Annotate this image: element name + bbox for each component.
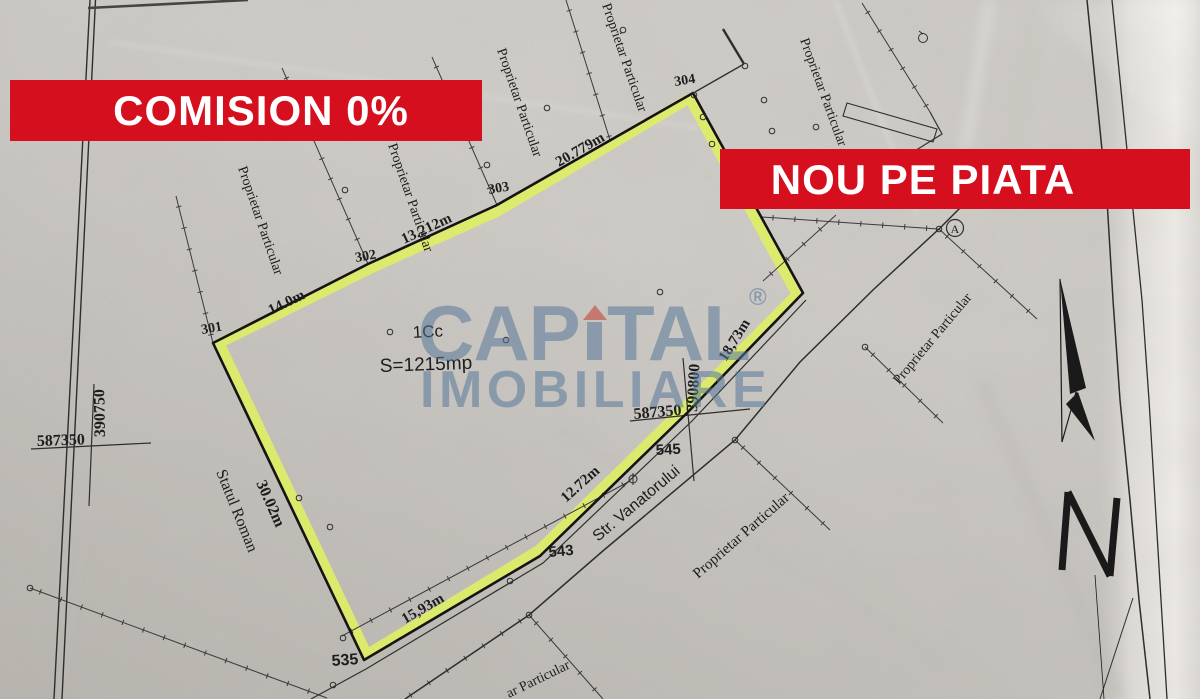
svg-text:587350: 587350 xyxy=(37,431,86,450)
svg-text:545: 545 xyxy=(655,441,681,459)
svg-text:®: ® xyxy=(749,284,767,311)
svg-text:COMISION 0%: COMISION 0% xyxy=(113,87,409,134)
svg-text:IMOBILIARE: IMOBILIARE xyxy=(420,361,771,419)
svg-text:543: 543 xyxy=(548,542,574,561)
svg-text:535: 535 xyxy=(331,651,359,670)
svg-text:A: A xyxy=(951,222,960,236)
svg-text:390750: 390750 xyxy=(91,389,109,437)
svg-text:NOU PE PIATA: NOU PE PIATA xyxy=(771,156,1075,203)
